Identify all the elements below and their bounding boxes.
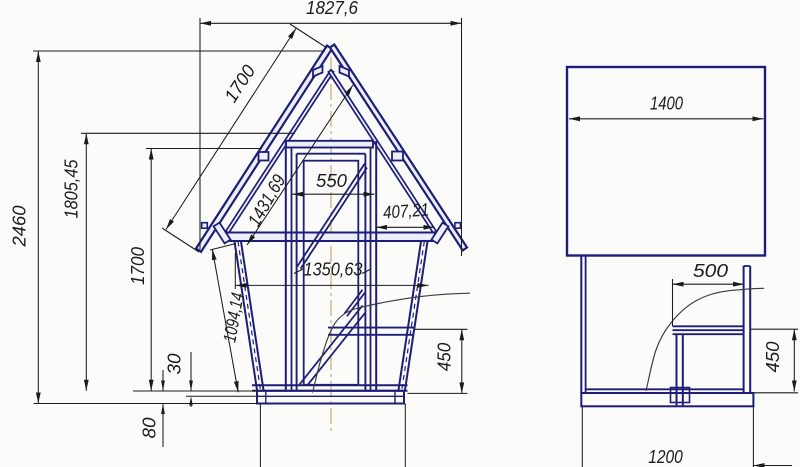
svg-text:550: 550: [316, 170, 348, 191]
svg-text:500: 500: [693, 260, 729, 281]
svg-text:1400: 1400: [650, 93, 684, 114]
svg-text:1700: 1700: [127, 246, 148, 285]
svg-text:1200: 1200: [648, 446, 683, 467]
svg-text:450: 450: [762, 341, 783, 373]
svg-text:1350,63: 1350,63: [304, 259, 364, 280]
svg-text:30: 30: [164, 353, 185, 375]
svg-text:1805,45: 1805,45: [61, 159, 82, 219]
svg-text:80: 80: [139, 417, 160, 439]
svg-text:1827,6: 1827,6: [306, 0, 359, 18]
svg-text:2460: 2460: [9, 205, 30, 248]
svg-text:407,21: 407,21: [382, 199, 429, 222]
svg-text:450: 450: [434, 342, 455, 371]
svg-text:1094,14: 1094,14: [219, 291, 247, 344]
svg-text:1700: 1700: [220, 60, 260, 106]
